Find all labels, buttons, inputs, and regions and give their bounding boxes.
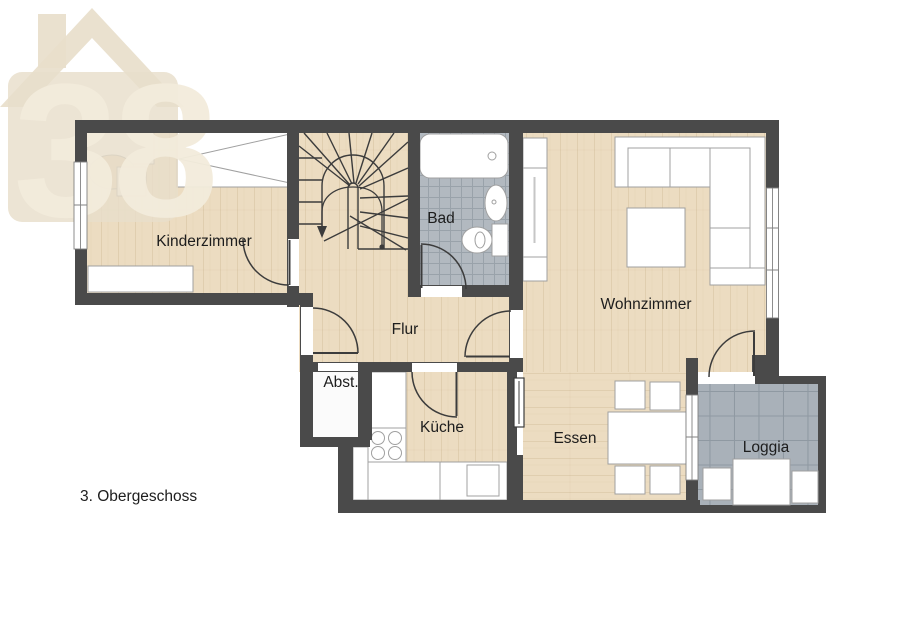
wall-loggia-right [818, 376, 826, 513]
logo-house-number: 38 [13, 45, 213, 257]
floor-plan-drawing: 38 [0, 0, 900, 636]
burner [372, 432, 385, 445]
kitchen-counter-upper [368, 372, 406, 428]
wall-kinderzimmer-south [75, 293, 313, 305]
burner [372, 447, 385, 460]
coffee-table [627, 208, 685, 267]
toilet-bowl [462, 227, 492, 253]
opening-abst [318, 363, 358, 371]
wall-top [75, 120, 779, 133]
room-label-bad: Bad [427, 210, 455, 227]
burner [389, 432, 402, 445]
radiator-essen [514, 378, 524, 427]
room-label-essen: Essen [553, 430, 596, 447]
kitchen-sink [467, 465, 499, 496]
opening-loggia [698, 372, 755, 384]
stair-walk-line-start [379, 244, 384, 249]
room-label-wohnzimmer: Wohnzimmer [600, 296, 691, 313]
room-label-flur: Flur [392, 321, 419, 338]
opening-entry [301, 307, 313, 355]
floor-plan-canvas: 38 [0, 0, 900, 636]
wall-bad-west [408, 133, 420, 297]
dining-chair [650, 466, 680, 494]
opening-bad [421, 286, 462, 297]
room-label-abstellraum: Abst. [323, 374, 358, 391]
wardrobe [88, 266, 193, 292]
opening-kueche [412, 363, 457, 372]
wall-loggia-bottom [698, 505, 826, 513]
kitchen-counter-left [353, 447, 368, 500]
bathtub [420, 134, 508, 178]
toilet-tank [492, 224, 508, 256]
room-label-kueche: Küche [420, 419, 464, 436]
loggia-chair [792, 471, 818, 503]
wall-kueche-east-lower [507, 455, 523, 513]
wall-abst-east [358, 362, 372, 440]
room-label-kinderzimmer: Kinderzimmer [156, 233, 252, 250]
room-label-loggia: Loggia [743, 439, 790, 456]
burner [389, 447, 402, 460]
dining-chair [650, 382, 680, 410]
dining-table [608, 412, 686, 464]
loggia-table [733, 459, 790, 505]
loggia-chair [703, 468, 731, 500]
floor-title: 3. Obergeschoss [80, 488, 197, 505]
dining-chair [615, 381, 645, 409]
wall-loggia-top [755, 376, 826, 384]
dining-chair [615, 466, 645, 494]
opening-wohnzimmer [510, 310, 523, 358]
